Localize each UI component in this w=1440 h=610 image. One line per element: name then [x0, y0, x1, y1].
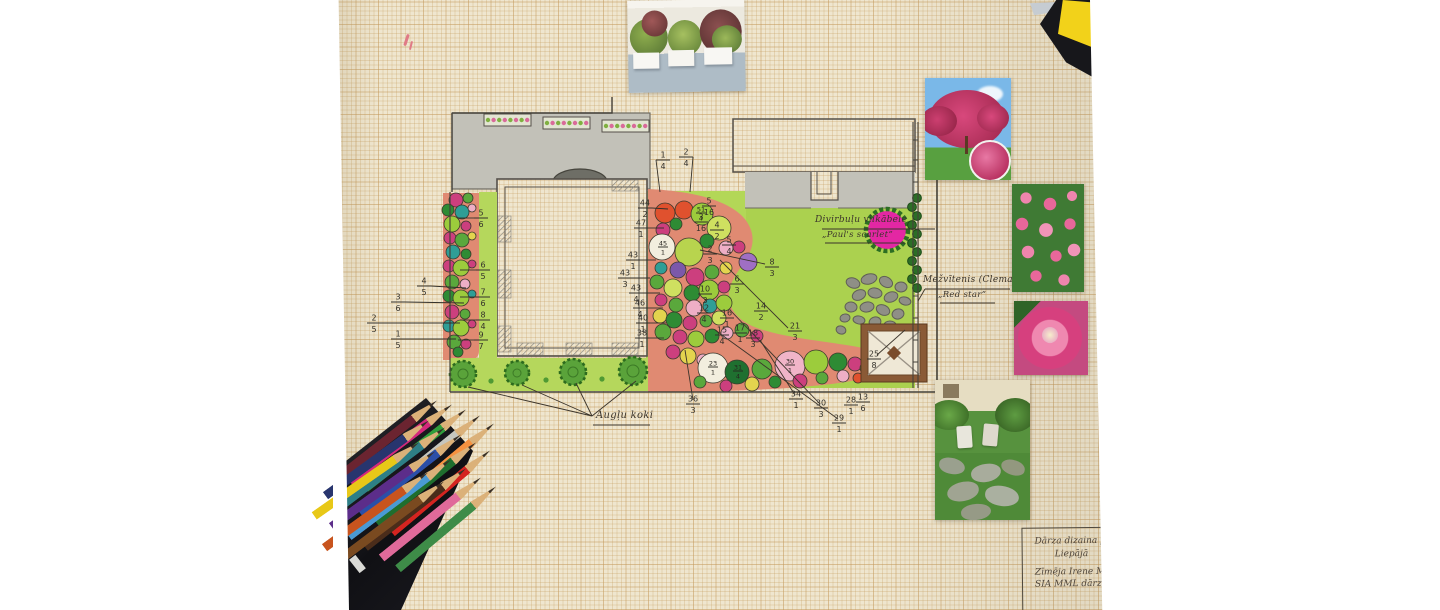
svg-text:4: 4	[683, 159, 688, 168]
svg-text:2: 2	[683, 148, 688, 157]
svg-text:7: 7	[480, 288, 485, 297]
svg-text:17: 17	[735, 324, 745, 333]
hedge-scallop	[913, 284, 922, 293]
svg-text:38: 38	[637, 329, 647, 338]
svg-text:3: 3	[734, 286, 739, 295]
title-line-2: Liepājā	[1035, 548, 1103, 559]
svg-text:5: 5	[478, 209, 483, 218]
svg-text:6: 6	[734, 275, 739, 284]
svg-text:4: 4	[699, 215, 703, 223]
svg-text:1: 1	[848, 407, 853, 416]
hedge-scallop	[908, 239, 917, 248]
window-box	[543, 117, 590, 129]
hedge-scallop	[913, 230, 922, 239]
photo-pink-hawthorn-tree	[925, 78, 1011, 180]
plant-circle	[445, 305, 459, 319]
svg-text:9: 9	[478, 331, 483, 340]
plant-circle	[468, 260, 476, 268]
svg-text:3: 3	[818, 410, 823, 419]
fraction-annotation: 341	[789, 390, 803, 411]
svg-text:16: 16	[696, 224, 706, 233]
svg-text:51: 51	[697, 206, 705, 214]
svg-text:5: 5	[706, 197, 711, 206]
svg-text:4: 4	[736, 373, 740, 381]
svg-text:15: 15	[717, 326, 727, 335]
plant-circle	[455, 205, 469, 219]
svg-text:3: 3	[622, 280, 627, 289]
plant-circle	[733, 241, 745, 253]
svg-text:5: 5	[726, 236, 731, 245]
svg-text:25: 25	[869, 350, 879, 359]
svg-text:12: 12	[699, 304, 709, 313]
svg-text:4: 4	[660, 162, 665, 171]
plant-circle	[680, 348, 696, 364]
title-line-4: SIA MML dārzi. 19	[1035, 578, 1103, 589]
svg-text:2: 2	[707, 245, 712, 254]
svg-text:29: 29	[834, 414, 844, 423]
svg-text:45: 45	[659, 240, 667, 248]
svg-text:3: 3	[707, 256, 712, 265]
svg-text:10: 10	[700, 285, 710, 294]
plant-circle	[769, 376, 781, 388]
window-box	[602, 120, 649, 132]
svg-text:28: 28	[846, 396, 856, 405]
svg-text:3: 3	[395, 293, 400, 302]
plant-circle	[705, 265, 719, 279]
plant-circle	[446, 245, 460, 259]
hedge-scallop	[908, 257, 917, 266]
stone	[895, 282, 907, 292]
paper-right-edge	[1090, 0, 1440, 610]
fraction-annotation: 24	[679, 148, 693, 193]
svg-text:30: 30	[786, 358, 794, 366]
plant-circle	[670, 218, 682, 230]
plant-circle	[804, 350, 828, 374]
plant-circle	[684, 285, 700, 301]
svg-text:4: 4	[726, 247, 731, 256]
svg-text:4: 4	[714, 221, 719, 230]
garden-plan-drawing: 4536251556657684971424442471431433434464…	[360, 95, 1020, 445]
window-box	[484, 114, 531, 126]
plant-circle	[468, 232, 476, 240]
fraction-annotation: 363	[686, 395, 700, 416]
hawthorn-cultivar-label: „Paul's scarlet”	[822, 230, 893, 240]
hedge-scallop	[913, 266, 922, 275]
svg-text:6: 6	[480, 261, 485, 270]
title-line-1: Dārza dizaina plā	[1035, 535, 1103, 546]
hedge-scallop	[908, 203, 917, 212]
plant-circle	[463, 193, 473, 203]
svg-text:1: 1	[788, 367, 792, 375]
plant-circle	[675, 201, 693, 219]
hawthorn-label: Divirbuļu vilkābele	[815, 215, 907, 225]
svg-text:3: 3	[792, 333, 797, 342]
svg-text:1: 1	[836, 425, 841, 434]
svg-text:13: 13	[858, 393, 868, 402]
clematis-hedge	[908, 194, 922, 293]
svg-text:3: 3	[690, 406, 695, 415]
svg-text:47: 47	[636, 219, 646, 228]
title-block: Dārza dizaina plā Liepājā Zīmēja Irene M…	[1021, 526, 1103, 610]
plant-circle	[442, 204, 454, 216]
svg-text:1: 1	[660, 151, 665, 160]
plant-circle	[683, 316, 697, 330]
svg-text:6: 6	[480, 299, 485, 308]
svg-text:31: 31	[734, 364, 742, 372]
bush-symbol	[560, 359, 586, 385]
svg-text:1: 1	[793, 401, 798, 410]
plant-circle	[688, 331, 704, 347]
svg-text:4: 4	[719, 337, 724, 346]
plant-circle	[670, 262, 686, 278]
svg-text:36: 36	[688, 395, 698, 404]
svg-text:1: 1	[638, 230, 643, 239]
svg-text:18: 18	[748, 329, 758, 338]
fraction-annotation: 136	[856, 393, 870, 414]
plant-circle	[718, 281, 730, 293]
hedge-scallop	[908, 221, 917, 230]
plant-circle	[720, 262, 732, 274]
svg-text:1: 1	[395, 330, 400, 339]
svg-text:14: 14	[756, 302, 766, 311]
path-strip	[745, 172, 915, 208]
fraction-annotation: 303	[814, 399, 828, 420]
svg-text:4: 4	[701, 315, 706, 324]
svg-text:5: 5	[480, 272, 485, 281]
svg-text:1: 1	[711, 369, 715, 377]
svg-text:43: 43	[620, 269, 630, 278]
photo-pink-clematis-cluster	[1012, 184, 1084, 292]
hedge-scallop	[908, 275, 917, 284]
plant-circle	[837, 370, 849, 382]
plant-circle	[655, 262, 667, 274]
plant-circle	[694, 376, 706, 388]
svg-text:8: 8	[480, 311, 485, 320]
title-line-3: Zīmēja Irene Mude	[1035, 566, 1103, 577]
clematis-cultivar-label: „Red star”	[938, 290, 986, 300]
plant-circle	[720, 380, 732, 392]
svg-text:2: 2	[758, 313, 763, 322]
svg-text:44: 44	[640, 199, 650, 208]
svg-text:16: 16	[704, 208, 714, 217]
plant-circle	[461, 339, 471, 349]
plant-circle	[444, 216, 460, 232]
plant-circle	[650, 275, 664, 289]
plant-circle	[461, 221, 471, 231]
courtyard-square	[497, 179, 647, 356]
svg-text:5: 5	[371, 325, 376, 334]
bush-symbol	[619, 357, 647, 385]
plant-circle	[793, 374, 807, 388]
svg-text:43: 43	[628, 251, 638, 260]
shrub-dot	[488, 378, 493, 383]
plant-circle	[745, 377, 759, 391]
svg-text:46: 46	[635, 299, 645, 308]
svg-text:3: 3	[769, 269, 774, 278]
photo-pink-clematis-single-bloom	[1014, 301, 1088, 375]
plant-circle	[453, 260, 469, 276]
shrub-dot	[599, 376, 604, 381]
svg-text:1: 1	[661, 249, 665, 257]
photo-garden-patio-with-chairs	[935, 380, 1030, 520]
bush-symbol	[450, 361, 476, 387]
svg-text:40: 40	[638, 314, 648, 323]
plant-circle	[461, 249, 471, 259]
plant-circle	[655, 294, 667, 306]
fraction-annotation: 291	[832, 414, 846, 435]
plant-circle	[453, 320, 469, 336]
svg-text:1: 1	[737, 335, 742, 344]
svg-text:5: 5	[421, 288, 426, 297]
svg-text:3: 3	[750, 340, 755, 349]
svg-text:4: 4	[421, 277, 426, 286]
svg-text:7: 7	[478, 342, 483, 351]
shrub-dot	[543, 377, 548, 382]
svg-text:8: 8	[769, 258, 774, 267]
plant-circle	[673, 330, 687, 344]
hedge-scallop	[913, 194, 922, 203]
plant-circle	[455, 233, 469, 247]
svg-text:30: 30	[816, 399, 826, 408]
plant-circle	[453, 290, 469, 306]
svg-text:6: 6	[478, 220, 483, 229]
svg-text:2: 2	[371, 314, 376, 323]
fruit-trees-label: Augļu koki	[596, 410, 653, 421]
fraction-annotation: 281	[844, 396, 858, 417]
plant-circle	[816, 372, 828, 384]
plant-circle	[468, 204, 476, 212]
plant-circle	[468, 320, 476, 328]
svg-text:21: 21	[790, 322, 800, 331]
svg-text:1: 1	[639, 340, 644, 349]
plant-circle	[460, 309, 470, 319]
plant-circle	[669, 298, 683, 312]
plant-circle	[829, 353, 847, 371]
svg-text:1: 1	[630, 262, 635, 271]
svg-text:34: 34	[791, 390, 801, 399]
hedge-scallop	[913, 248, 922, 257]
plant-circle	[653, 309, 667, 323]
hedge-scallop	[913, 212, 922, 221]
upper-terrace-outline	[733, 119, 915, 172]
svg-text:16: 16	[722, 309, 732, 318]
photographed-garden-plan-scene: Dārza dizaina plā Liepājā Zīmēja Irene M…	[0, 0, 1440, 610]
plant-circle	[664, 279, 682, 297]
svg-text:23: 23	[709, 360, 717, 368]
photo-white-planter-boxes	[627, 0, 746, 93]
svg-text:5: 5	[395, 341, 400, 350]
svg-text:6: 6	[860, 404, 865, 413]
svg-text:43: 43	[631, 284, 641, 293]
stone	[845, 301, 858, 312]
fraction-annotation: 14	[656, 151, 670, 193]
svg-text:2: 2	[714, 232, 719, 241]
svg-text:6: 6	[395, 304, 400, 313]
plant-circle	[666, 345, 680, 359]
bush-symbol	[505, 361, 529, 385]
plant-circle	[453, 347, 463, 357]
svg-text:8: 8	[871, 361, 876, 370]
